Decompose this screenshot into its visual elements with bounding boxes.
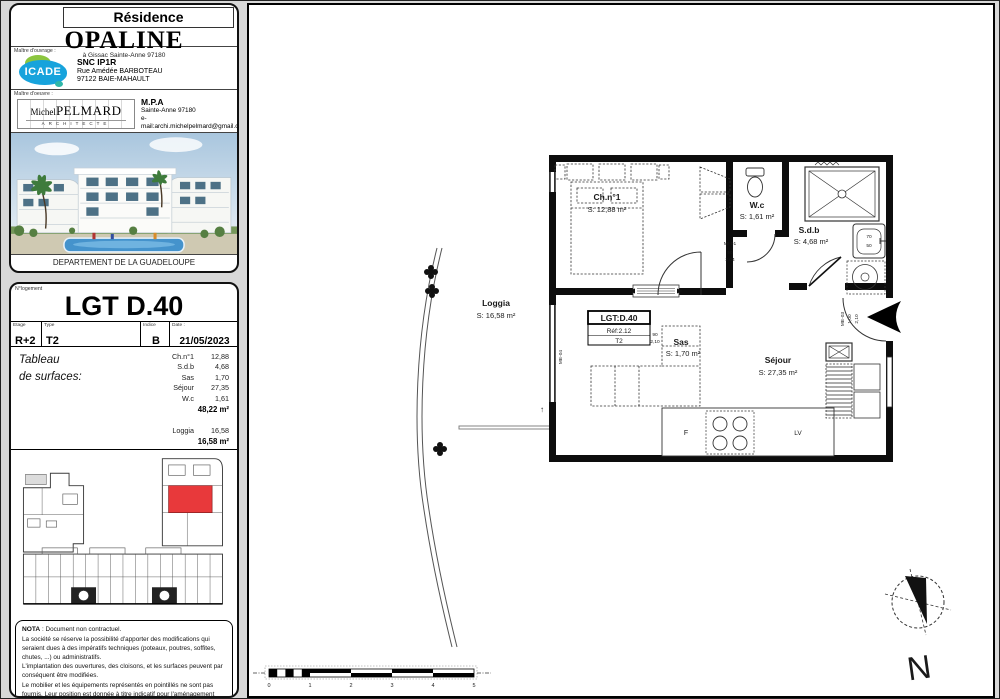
surface-table-title-1: Tableau [19,352,82,369]
field-date: Date : 21/05/2023 [170,322,237,346]
architect-name: M.P.A [141,97,239,108]
residence-header: Résidence OPALINE à Gissac Sainte-Anne 9… [11,5,237,47]
entrance-arrow [867,301,901,333]
svg-text:5: 5 [472,683,475,689]
svg-text:S: 4,68 m²: S: 4,68 m² [794,237,829,246]
svg-text:S: 1,70 m²: S: 1,70 m² [666,349,701,358]
surface-row: Séjour27,35 [146,383,229,393]
floor-plan: LGT:D.40 Réf:2.12 T2 Ch.n°1 S: 12,88 m² … [249,5,993,696]
key-plan-highlight [169,485,213,512]
toilet [746,168,764,197]
room-labels: Ch.n°1 S: 12,88 m² W.c S: 1,61 m² S.d.b … [477,192,829,377]
svg-text:1,00: 1,00 [847,314,853,324]
nota-paragraph-1: La société se réserve la possibilité d'a… [22,636,226,662]
pelmard-logo-last: PELMARD [56,103,122,118]
room-label-sejour: Séjour [765,355,792,365]
architect-section: Maître d'oeuvre : MichelPELMARD ARCHITEC… [11,90,237,133]
residence-label: Résidence [63,7,234,28]
technical-shaft [826,343,852,361]
nota-box: NOTA : Document non contractuel. La soci… [15,620,233,698]
svg-text:S: 12,88 m²: S: 12,88 m² [588,205,627,214]
kitchen-column [826,364,880,418]
nota-paragraph-2: L'implantation des ouvertures, des clois… [22,663,226,681]
door-label-me03: ME-03 [840,312,846,326]
unit-block: N°logement LGT D.40 Etage R+2 Type T2 In… [9,282,239,698]
level-arrow: ↑ [540,405,544,414]
surface-row: Sas1,70 [146,373,229,383]
svg-text:S: 27,35 m²: S: 27,35 m² [759,368,798,377]
surface-row: Ch.n°112,88 [146,352,229,362]
svg-text:2,10: 2,10 [854,314,860,324]
basin-dim-width: 70 [866,234,872,240]
drawing-area: LGT:D.40 Réf:2.12 T2 Ch.n°1 S: 12,88 m² … [247,3,995,698]
icade-logo-dot [55,81,63,87]
pelmard-logo-sub: ARCHITECTE [26,120,126,126]
room-label-loggia: Loggia [482,298,510,308]
plan-sheet: Résidence OPALINE à Gissac Sainte-Anne 9… [0,0,1000,699]
svg-text:LGT:D.40: LGT:D.40 [601,313,638,323]
surface-row-loggia: Loggia16,58 [146,426,229,436]
field-etage: Etage R+2 [11,322,42,346]
architect-info: M.P.A Sainte-Anne 97180 e-mail:archi.mic… [141,97,239,132]
nota-paragraph-3: Le mobilier et les équipements représent… [22,682,226,698]
fridge-label: F [684,430,688,437]
owner-name: SNC IP1R [77,57,163,68]
wardrobe [700,167,730,219]
lot-fields: Etage R+2 Type T2 Indice B Date : 21/05/… [11,321,237,347]
room-label-sdb: S.d.b [799,225,820,235]
unit-tag: LGT:D.40 Réf:2.12 T2 [588,311,650,345]
sas-door-dim-1: 90 [652,332,658,338]
planter-symbols [424,265,447,456]
building-rendering [11,133,237,255]
key-plan-drawing [11,450,237,619]
nota-line-1: NOTA : Document non contractuel. [22,625,226,635]
window-label-me04: ME-04 [558,350,564,364]
sas-door-dim-2: 2,10 [650,339,660,345]
north-label: N [905,648,934,688]
svg-text:Réf:2.12: Réf:2.12 [607,328,632,335]
svg-text:90: 90 [727,250,733,256]
surface-row: W.c1,61 [146,394,229,404]
architect-address: Sainte-Anne 97180 [141,107,239,115]
svg-text:4: 4 [431,683,434,689]
sliding-door [629,285,683,297]
washbasin [853,224,886,258]
owner-address-1: Rue Amédée BARBOTEAU [77,68,163,77]
owner-section: Maître d'ouvrage : ICADE SNC IP1R Rue Am… [11,47,237,90]
owner-info: SNC IP1R Rue Amédée BARBOTEAU 97122 BAIE… [77,57,163,85]
svg-text:0: 0 [267,683,270,689]
basin-dim-depth: 50 [866,243,872,249]
surface-table-title-2: de surfaces: [19,369,82,386]
building-rendering-art [11,133,237,254]
door-label-mi01: MI-01 [724,241,737,247]
svg-text:T2: T2 [615,338,623,345]
owner-address-2: 97122 BAIE-MAHAULT [77,76,163,85]
surface-total: 48,22 m² [146,404,229,416]
bed [555,164,669,274]
surface-table: Tableau de surfaces: Ch.n°112,88 S.d.b4,… [11,347,237,450]
room-label-sas: Sas [673,337,688,347]
pelmard-logo-first: Michel [30,107,56,117]
scale-bar: 0 1 2 3 4 5 [253,666,491,689]
owner-section-label: Maître d'ouvrage : [14,48,56,54]
room-label-ch1: Ch.n°1 [593,192,620,202]
surface-row: S.d.b4,68 [146,362,229,372]
field-type: Type T2 [42,322,141,346]
svg-text:2,04: 2,04 [725,257,735,263]
loggia-slab-edge [459,426,551,429]
architect-section-label: Maître d'oeuvre : [14,91,53,97]
field-indice: Indice B [141,322,170,346]
shower [805,162,879,221]
icade-logo: ICADE [17,55,71,87]
dishwasher-label: LV [794,430,802,437]
svg-text:2: 2 [349,683,352,689]
north-compass: N [885,569,951,687]
svg-text:S: 1,61 m²: S: 1,61 m² [740,212,775,221]
surface-loggia-total: 16,58 m² [146,436,229,448]
title-block: Résidence OPALINE à Gissac Sainte-Anne 9… [9,3,239,273]
room-label-wc: W.c [750,200,765,210]
pelmard-logo: MichelPELMARD ARCHITECTE [17,99,135,129]
svg-text:3: 3 [390,683,393,689]
nota-title: NOTA [22,626,40,633]
svg-text:S: 16,58 m²: S: 16,58 m² [477,311,516,320]
key-plan [11,450,237,619]
svg-text:1: 1 [308,683,311,689]
region-caption: DEPARTEMENT DE LA GUADELOUPE [11,255,237,271]
lot-title: LGT D.40 [11,292,237,321]
architect-email: e-mail:archi.michelpelmard@gmail.com [141,115,239,131]
